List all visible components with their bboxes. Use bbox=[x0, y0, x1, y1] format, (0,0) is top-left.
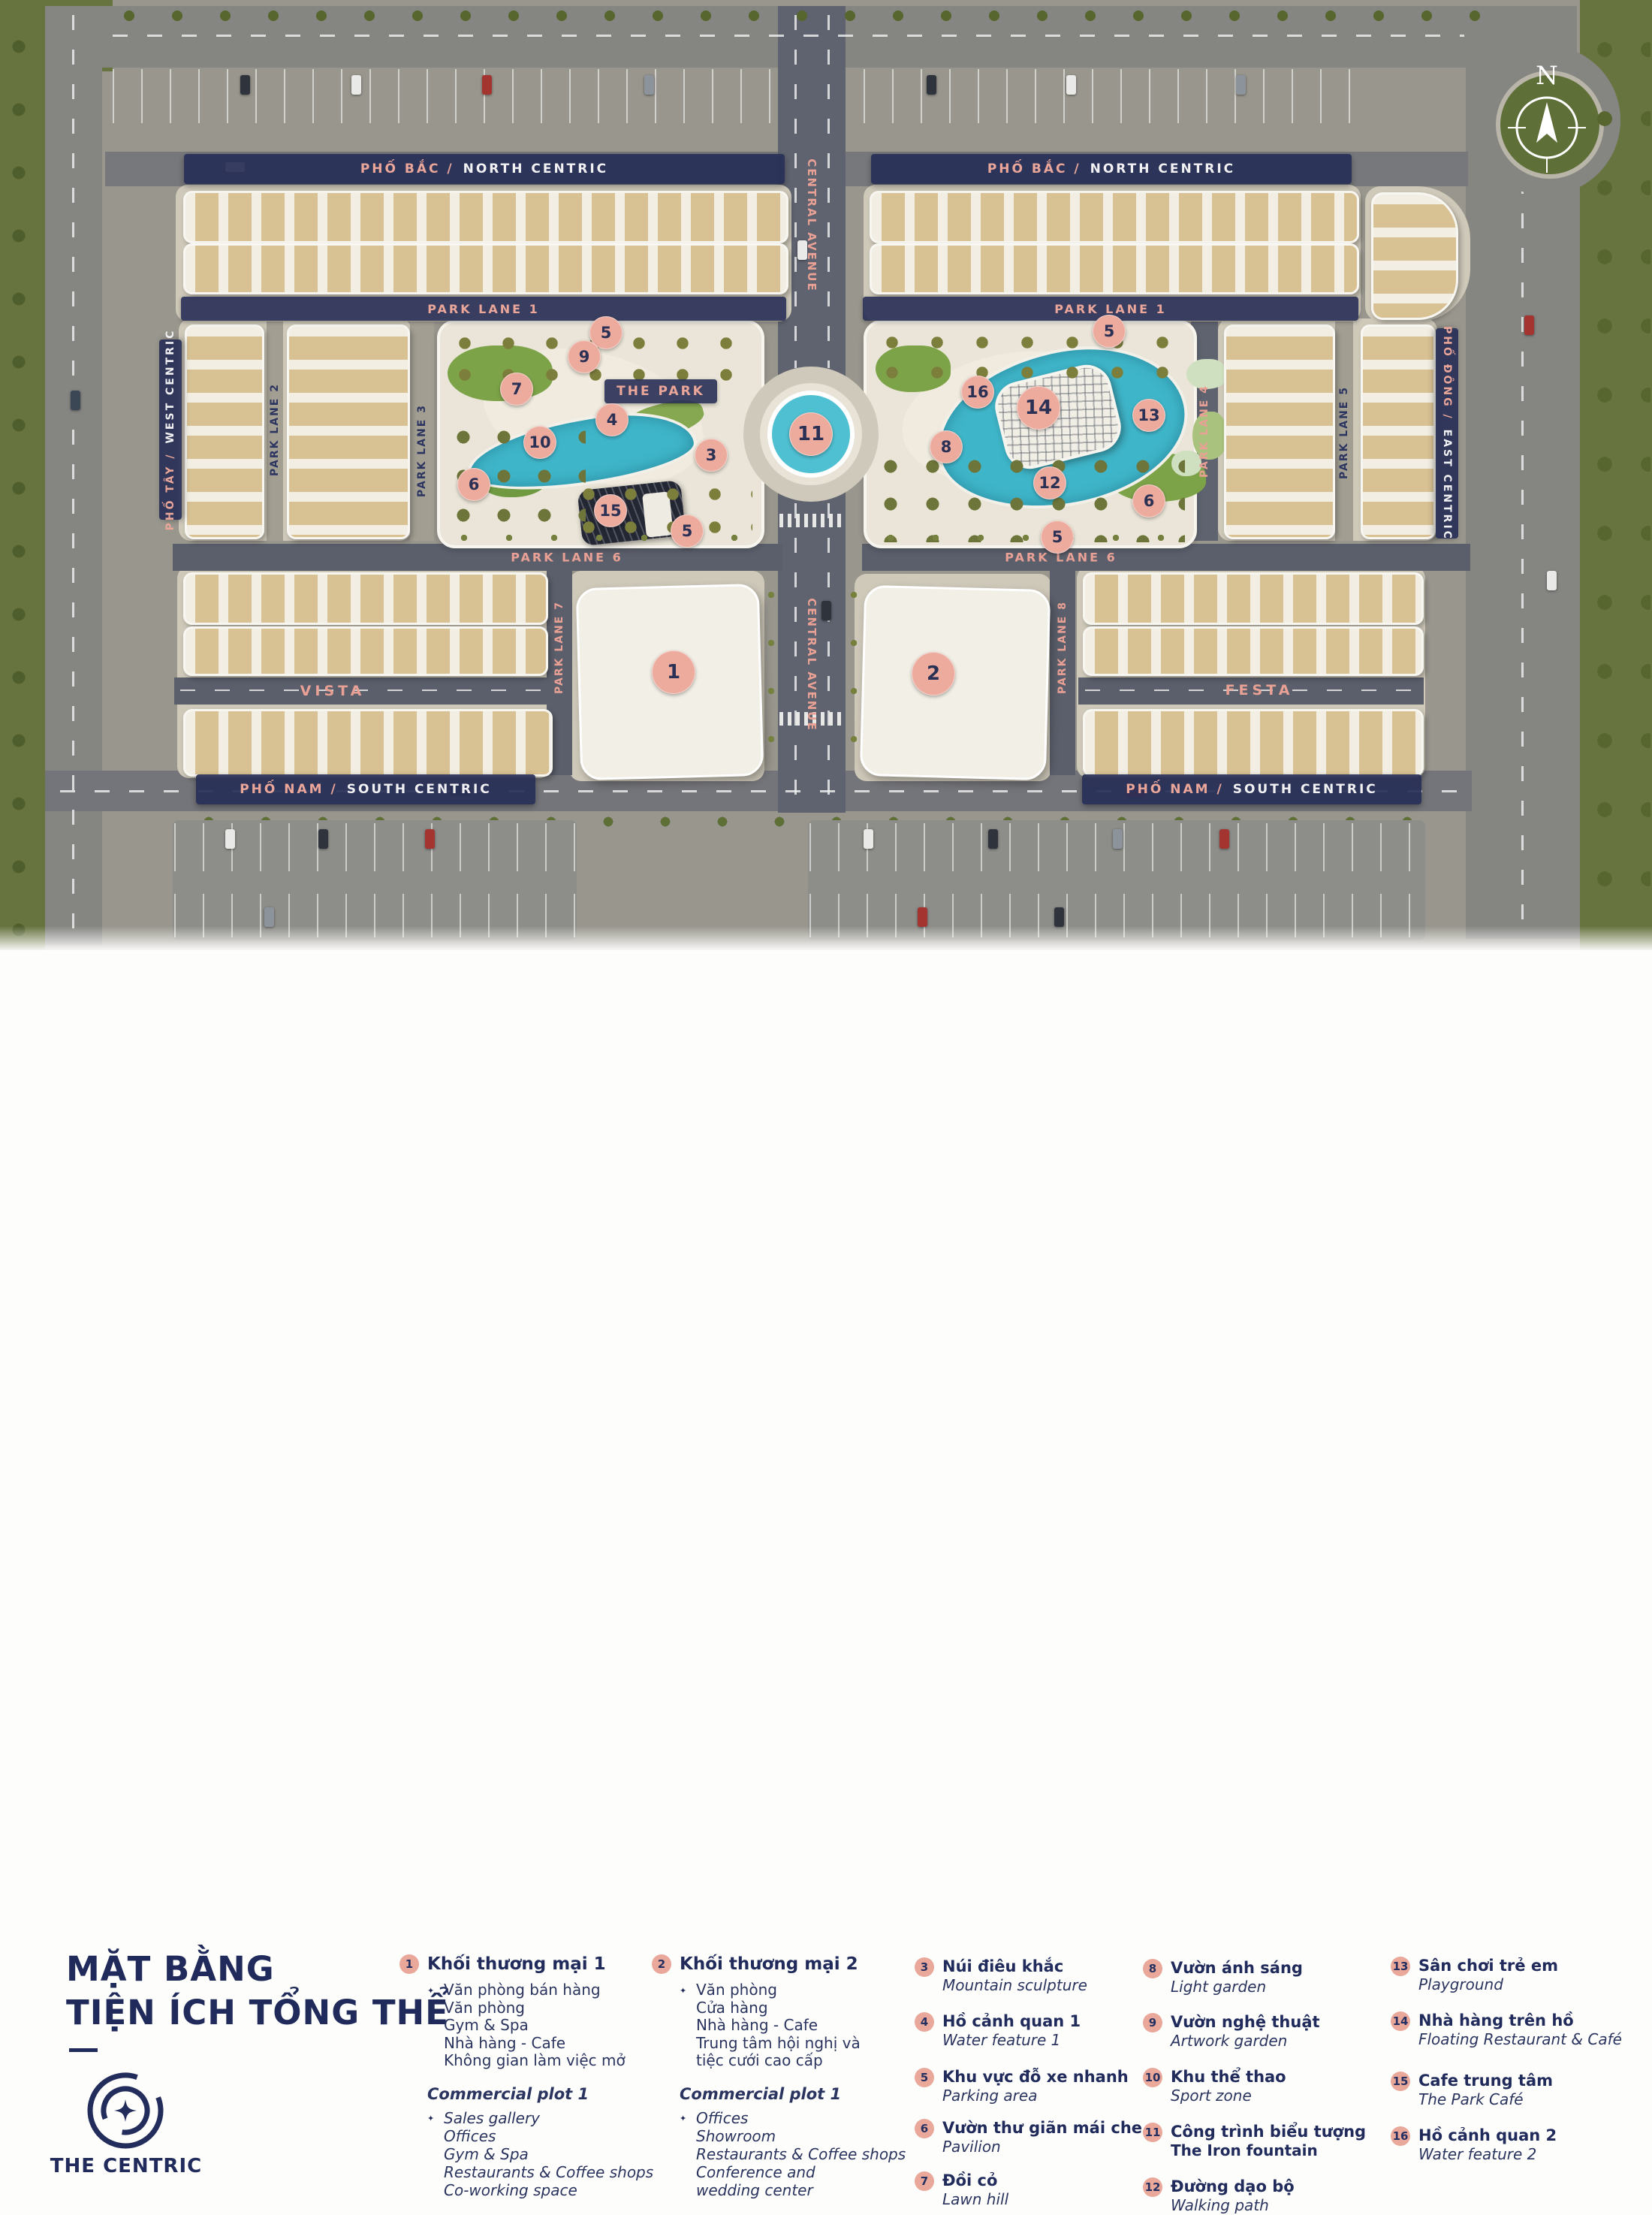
legend-vi-label: Khu thể thao bbox=[1171, 2068, 1286, 2087]
legend-item-9: 9 Vườn nghệ thuật Artwork garden bbox=[1143, 2013, 1320, 2051]
bullet-icon: ✦ bbox=[427, 1986, 438, 2070]
legend-number-badge: 11 bbox=[1143, 2123, 1162, 2142]
map-marker-10: 10 bbox=[523, 426, 556, 459]
legend-vi-label: Nhà hàng trên hồ bbox=[1418, 2011, 1622, 2030]
legend-en-label: Playground bbox=[1418, 1975, 1558, 1994]
legend-en-label: Light garden bbox=[1171, 1978, 1303, 1996]
legend-item-2-title: Khối thương mại 2 bbox=[680, 1954, 906, 1974]
legend-vi-label: Hồ cảnh quan 1 bbox=[942, 2012, 1081, 2031]
legend-number-badge: 16 bbox=[1391, 2126, 1410, 2146]
legend-item-1-en-list: Sales gallery Offices Gym & Spa Restaura… bbox=[444, 2109, 653, 2199]
legend-item-14: 14 Nhà hàng trên hồ Floating Restaurant … bbox=[1391, 2011, 1622, 2049]
legend-item-2-vi: ✦ Văn phòng Cửa hàng Nhà hàng - Cafe Tru… bbox=[680, 1981, 906, 2070]
legend: MẶT BẰNG TIỆN ÍCH TỔNG THỂ THE CENTRIC 1… bbox=[0, 950, 1652, 1284]
legend-item-4: 4 Hồ cảnh quan 1 Water feature 1 bbox=[915, 2012, 1081, 2050]
legend-title-line1: MẶT BẰNG bbox=[66, 1948, 449, 1991]
legend-number-badge: 13 bbox=[1391, 1957, 1410, 1976]
legend-vi-label: Núi điêu khắc bbox=[942, 1957, 1087, 1976]
legend-vi-label: Công trình biểu tượng bbox=[1171, 2123, 1366, 2141]
map-marker-16: 16 bbox=[961, 376, 994, 409]
legend-vi-label: Vườn nghệ thuật bbox=[1171, 2013, 1320, 2032]
map-marker-8: 8 bbox=[930, 430, 963, 463]
legend-item-2-en-title: Commercial plot 1 bbox=[680, 2085, 906, 2103]
bullet-icon: ✦ bbox=[427, 2114, 438, 2199]
map-marker-1: 1 bbox=[652, 650, 695, 694]
legend-en-label: Floating Restaurant & Café bbox=[1418, 2030, 1622, 2049]
legend-item-7: 7 Đồi cỏ Lawn hill bbox=[915, 2171, 1008, 2209]
legend-item-6: 6 Vườn thư giãn mái che Pavilion bbox=[915, 2119, 1142, 2156]
map-marker-5: 5 bbox=[1093, 315, 1126, 348]
legend-vi-label: Vườn ánh sáng bbox=[1171, 1959, 1303, 1978]
legend-number-badge: 3 bbox=[915, 1957, 934, 1977]
legend-number-badge: 8 bbox=[1143, 1959, 1162, 1978]
map-marker-2: 2 bbox=[912, 652, 955, 696]
page: N bbox=[0, 0, 1652, 1284]
map-marker-5: 5 bbox=[671, 515, 704, 548]
legend-en-label: Pavilion bbox=[942, 2138, 1142, 2156]
legend-en-label: Sport zone bbox=[1171, 2087, 1286, 2105]
legend-item-8: 8 Vườn ánh sáng Light garden bbox=[1143, 1959, 1303, 1996]
legend-number-badge: 4 bbox=[915, 2012, 934, 2032]
legend-item-13: 13 Sân chơi trẻ em Playground bbox=[1391, 1957, 1558, 1994]
legend-item-1: 1 Khối thương mại 1 ✦ Văn phòng bán hàng… bbox=[399, 1954, 653, 2199]
bullet-icon: ✦ bbox=[680, 2114, 690, 2199]
map-marker-3: 3 bbox=[695, 439, 728, 472]
legend-en-label: Parking area bbox=[942, 2087, 1129, 2105]
map-marker-13: 13 bbox=[1132, 399, 1165, 432]
legend-item-2-en-list: Offices Showroom Restaurants & Coffee sh… bbox=[696, 2109, 906, 2199]
legend-item-3: 3 Núi điêu khắc Mountain sculpture bbox=[915, 1957, 1087, 1995]
legend-vi-label: Hồ cảnh quan 2 bbox=[1418, 2126, 1557, 2145]
legend-item-2-en: ✦ Offices Showroom Restaurants & Coffee … bbox=[680, 2109, 906, 2199]
bullet-icon: ✦ bbox=[680, 1986, 690, 2070]
title-dash bbox=[69, 2048, 98, 2052]
legend-item-16: 16 Hồ cảnh quan 2 Water feature 2 bbox=[1391, 2126, 1557, 2164]
legend-item-1-en: ✦ Sales gallery Offices Gym & Spa Restau… bbox=[427, 2109, 653, 2199]
legend-number-badge: 5 bbox=[915, 2068, 934, 2087]
map-marker-11: 11 bbox=[789, 412, 833, 456]
legend-title-line2: TIỆN ÍCH TỔNG THỂ bbox=[66, 1991, 449, 2035]
legend-item-2-vi-list: Văn phòng Cửa hàng Nhà hàng - Cafe Trung… bbox=[696, 1981, 861, 2070]
legend-vi-label: Vườn thư giãn mái che bbox=[942, 2119, 1142, 2138]
map-marker-5: 5 bbox=[1041, 521, 1074, 554]
map-marker-4: 4 bbox=[595, 403, 629, 436]
legend-number-badge: 9 bbox=[1143, 2013, 1162, 2032]
legend-number-badge: 2 bbox=[652, 1954, 671, 1974]
legend-en-label: Water feature 1 bbox=[942, 2031, 1081, 2050]
legend-en-label: Lawn hill bbox=[942, 2190, 1008, 2209]
logo-wordmark: THE CENTRIC bbox=[47, 2155, 206, 2177]
legend-number-badge: 7 bbox=[915, 2171, 934, 2191]
legend-en-label: Mountain sculpture bbox=[942, 1976, 1087, 1995]
master-plan-map: N bbox=[0, 0, 1652, 950]
legend-en-label: The Park Café bbox=[1418, 2090, 1553, 2109]
legend-number-badge: 12 bbox=[1143, 2177, 1162, 2197]
map-marker-15: 15 bbox=[594, 494, 627, 527]
map-marker-14: 14 bbox=[1017, 386, 1060, 430]
legend-item-1-en-title: Commercial plot 1 bbox=[427, 2085, 653, 2103]
legend-item-1-text: Khối thương mại 1 ✦ Văn phòng bán hàng V… bbox=[427, 1954, 653, 2199]
legend-en-label: Artwork garden bbox=[1171, 2032, 1320, 2051]
legend-item-15: 15 Cafe trung tâm The Park Café bbox=[1391, 2072, 1553, 2109]
logo-star-icon bbox=[114, 2099, 137, 2122]
map-marker-7: 7 bbox=[500, 373, 533, 406]
legend-item-11: 11 Công trình biểu tượng The Iron founta… bbox=[1143, 2123, 1366, 2160]
markers-layer: 121114597410361555161381265 bbox=[0, 0, 1652, 950]
the-centric-logo bbox=[77, 2062, 174, 2159]
legend-item-10: 10 Khu thể thao Sport zone bbox=[1143, 2068, 1286, 2105]
legend-vi-label: Đồi cỏ bbox=[942, 2171, 1008, 2190]
legend-number-badge: 6 bbox=[915, 2119, 934, 2138]
legend-en-label: The Iron fountain bbox=[1171, 2141, 1366, 2160]
map-bottom-fade bbox=[0, 926, 1652, 950]
map-marker-6: 6 bbox=[457, 468, 490, 501]
map-marker-12: 12 bbox=[1033, 466, 1066, 499]
legend-number-badge: 15 bbox=[1391, 2072, 1410, 2091]
legend-vi-label: Sân chơi trẻ em bbox=[1418, 1957, 1558, 1975]
legend-item-2-text: Khối thương mại 2 ✦ Văn phòng Cửa hàng N… bbox=[680, 1954, 906, 2199]
legend-en-label: Walking path bbox=[1171, 2196, 1295, 2215]
legend-item-1-vi: ✦ Văn phòng bán hàng Văn phòng Gym & Spa… bbox=[427, 1981, 653, 2070]
legend-item-2: 2 Khối thương mại 2 ✦ Văn phòng Cửa hàng… bbox=[652, 1954, 906, 2199]
legend-item-1-vi-list: Văn phòng bán hàng Văn phòng Gym & Spa N… bbox=[444, 1981, 626, 2070]
legend-vi-label: Cafe trung tâm bbox=[1418, 2072, 1553, 2090]
legend-item-12: 12 Đường dạo bộ Walking path bbox=[1143, 2177, 1295, 2215]
legend-item-1-title: Khối thương mại 1 bbox=[427, 1954, 653, 1974]
legend-title: MẶT BẰNG TIỆN ÍCH TỔNG THỂ bbox=[66, 1948, 449, 2035]
legend-number-badge: 14 bbox=[1391, 2011, 1410, 2031]
legend-vi-label: Khu vực đỗ xe nhanh bbox=[942, 2068, 1129, 2087]
map-marker-6: 6 bbox=[1132, 484, 1165, 518]
legend-en-label: Water feature 2 bbox=[1418, 2145, 1557, 2164]
legend-number-badge: 1 bbox=[399, 1954, 419, 1974]
legend-item-5: 5 Khu vực đỗ xe nhanh Parking area bbox=[915, 2068, 1129, 2105]
map-marker-9: 9 bbox=[568, 340, 601, 373]
legend-number-badge: 10 bbox=[1143, 2068, 1162, 2087]
legend-vi-label: Đường dạo bộ bbox=[1171, 2177, 1295, 2196]
